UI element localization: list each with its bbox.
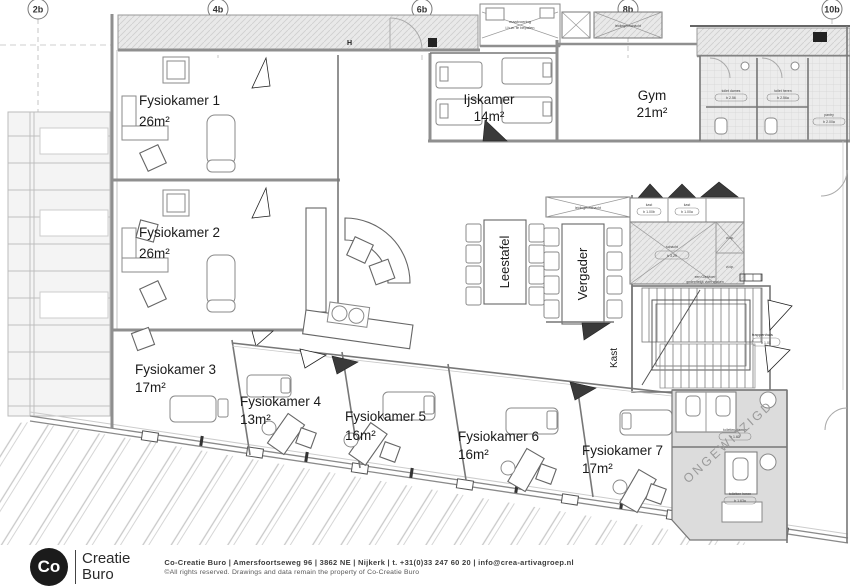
top-corridor: H [118,15,480,50]
kast2-code: b 1.00a [681,210,693,214]
fysio4-name: Fysiokamer 4 [240,394,322,409]
unchanged-area: toiletten dames b 1.63 toiletten heren b… [672,390,787,540]
stairwell: kast b 1.00b kast b 1.00a schacht b 3.29… [630,182,792,392]
room-gym: Gym 21m² [637,56,700,141]
gym-area: 21m² [637,105,668,120]
leestafel-label: Leestafel [497,236,512,289]
gallery-structure [8,112,110,416]
gym-name: Gym [638,88,667,103]
h-marker: H [347,40,352,47]
leestafel-area: Leestafel [466,220,544,305]
pantry-label: pantry [824,113,834,117]
maatvoering-note-2: i.h.w. te bepalen [506,25,535,30]
grid-label-6b: 6b [417,5,428,15]
logo-line2: Buro [82,567,130,583]
room-fysiokamer-7: Fysiokamer 7 17m² [582,410,672,512]
logo-line1: Creatie [82,551,130,567]
reception-desk [303,208,413,349]
fysio6-name: Fysiokamer 6 [458,429,539,444]
fysio7-area: 17m² [582,461,613,476]
kast-label: Kast [609,348,620,368]
maatvoering-note-1: maatvoering [509,19,531,24]
vloer-note-1: een Gietvloer [695,275,717,279]
toilet-heren-label: toilet heren [774,89,791,93]
toiletten-heren-label: toiletten heren [729,492,751,496]
kast2-label: kast [684,203,690,207]
ijskamer-name: Ijskamer [463,92,515,107]
kast1-code: b 1.00b [643,210,655,214]
top-small-rooms: maatvoering i.h.w. te bepalen leidingens… [480,4,700,46]
room-fysiokamer-5: Fysiokamer 5 16m² [344,364,466,480]
toilet-heren-code: b 2.56a [777,96,789,100]
fysio1-name: Fysiokamer 1 [139,93,220,108]
toiletten-heren-code: b 1.63a [734,499,746,503]
schacht-label: schacht [666,245,678,249]
grid-label-2b: 2b [33,5,44,15]
ijskamer-area: 14m² [474,109,505,124]
vergader-area: leidingenschacht Vergader Kast [544,197,630,368]
fysio3-name: Fysiokamer 3 [135,362,216,377]
logo-co-text: Co [38,557,61,577]
fysio6-area: 16m² [458,447,489,462]
pantry-code: b 2.00a [823,120,835,124]
shaft-top-label: leidingenschacht [615,24,641,28]
grid-label-4b: 4b [213,5,224,15]
floor-plan: 2b 4b 6b 8b 10b [0,0,850,545]
fysio1-area: 26m² [139,114,170,129]
room-fysiokamer-6: Fysiokamer 6 16m² [458,382,596,497]
fysio2-area: 26m² [139,246,170,261]
shaft-vergader-label: leidingenschacht [575,206,601,210]
fysio7-name: Fysiokamer 7 [582,443,663,458]
toilet-dames-code: b 2.56 [726,96,736,100]
grid-label-10b: 10b [824,5,840,15]
company-logo: Co Creatie Buro [30,548,130,586]
fysio4-area: 13m² [240,412,271,427]
fysio3-area: 17m² [135,380,166,395]
footer-rights-line: ©All rights reserved. Drawings and data … [164,569,574,576]
footer: Co Creatie Buro Co-Creatie Buro | Amersf… [0,545,850,588]
kast1-label: kast [646,203,652,207]
toilet-block-top: toilet dames b 2.56 toilet heren b 2.56a… [690,26,850,142]
fysio5-area: 16m² [345,428,376,443]
logo-divider [75,550,76,584]
vergader-label: Vergader [575,247,590,300]
footer-contact-line: Co-Creatie Buro | Amersfoortseweg 96 | 3… [164,558,574,567]
trappenhuis-label: trappenhuis [752,332,773,337]
trappenhuis-code: b 1.01 [761,341,771,345]
vlop2-label: vl.op. [726,265,734,269]
schacht-code: b 3.29 [667,254,677,258]
fysio5-name: Fysiokamer 5 [345,409,426,424]
fysio2-name: Fysiokamer 2 [139,225,220,240]
toilet-dames-label: toilet dames [722,89,741,93]
vlop1-label: vl.op. [726,236,734,240]
logo-co-icon: Co [30,548,68,586]
vloer-note-2: gedeeltelijk vloer maken [686,280,724,284]
